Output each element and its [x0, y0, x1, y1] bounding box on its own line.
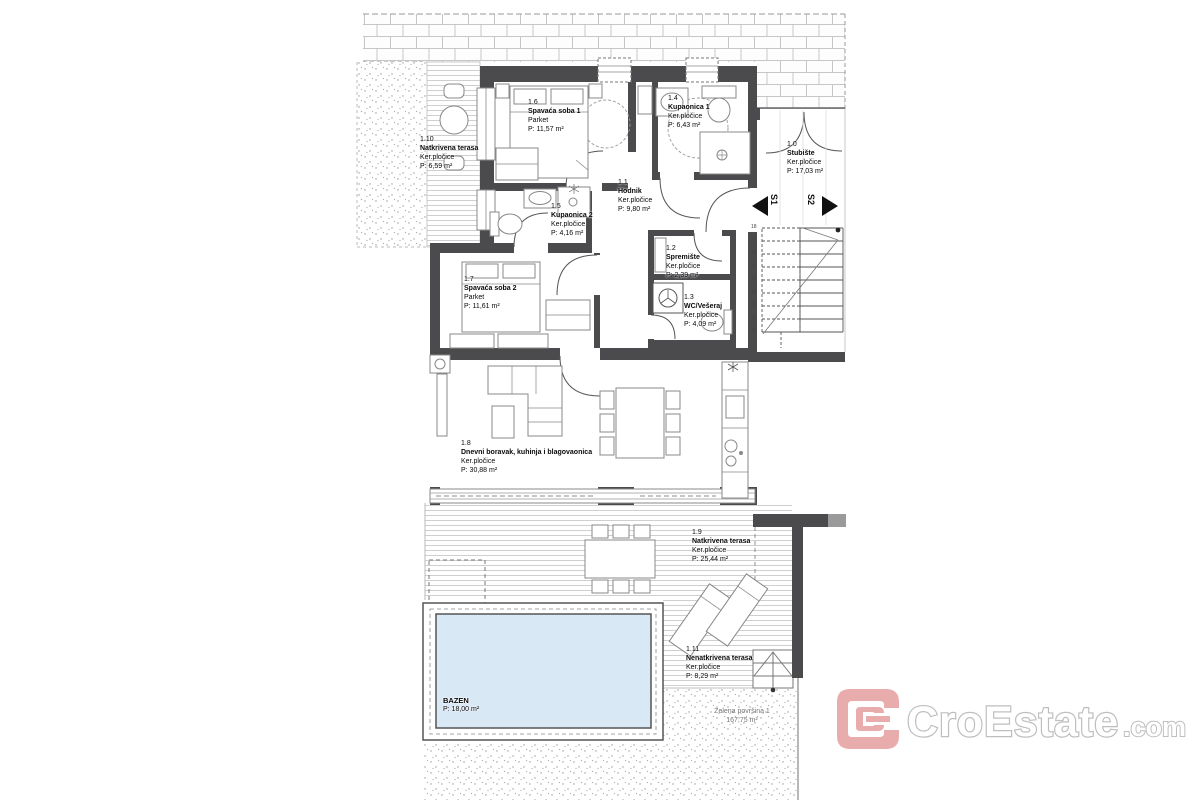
croestate-watermark: CroEstate .com: [833, 686, 1198, 761]
terrace-19-dining: [585, 525, 655, 593]
logo-tld-text: .com: [1123, 712, 1186, 742]
room-label-1-10: 1.10Natkrivena terasa Ker.pločiceP: 6,59…: [420, 135, 478, 171]
room-label-1-5: 1.5Kupaonica 2 Ker.pločiceP: 4,16 m²: [551, 202, 593, 238]
stair-step-number: 10: [751, 329, 757, 334]
garden-steps: [753, 650, 793, 692]
stair-step-number: 12: [751, 303, 757, 308]
stair-step-number: 13: [751, 290, 757, 295]
room-label-1-6: 1.6Spavaća soba 1 ParketP: 11,57 m²: [528, 98, 581, 134]
stair-step-number: 16: [751, 251, 757, 256]
section-marker-s1: S1: [769, 194, 779, 205]
living-room-furniture: [430, 355, 562, 438]
stair-step-number: 18: [751, 225, 757, 230]
stair-step-number: 17: [751, 238, 757, 243]
room-label-1-11: 1.11Nenatkrivena terasa Ker.pločiceP: 8,…: [686, 645, 753, 681]
room-label-1-1: 1.1Hodnik Ker.pločiceP: 9,80 m²: [618, 178, 652, 214]
sliding-glass-doors: [430, 489, 755, 503]
floor-plan-page: 1.0Stubište Ker.pločiceP: 17,03 m² 1.1Ho…: [0, 0, 1200, 800]
kitchen-counter: [722, 362, 748, 498]
stair-step-number: 14: [751, 277, 757, 282]
room-label-1-4: 1.4Kupaonica 1 Ker.pločiceP: 6,43 m²: [668, 94, 710, 130]
room-label-1-3: 1.3WC/Vešeraj Ker.pločiceP: 4,09 m²: [684, 293, 722, 329]
room-label-1-0: 1.0Stubište Ker.pločiceP: 17,03 m²: [787, 140, 823, 176]
section-marker-s2: S2: [806, 194, 816, 205]
dining-table: [600, 388, 680, 458]
pool-label: BAZENP: 18,00 m²: [443, 696, 479, 714]
room-label-1-7: 1.7Spavaća soba 2 ParketP: 11,61 m²: [464, 275, 517, 311]
stair-step-number: 11: [751, 316, 756, 321]
green-area-label: Zelena površina 1167,75 m²: [696, 707, 788, 725]
floor-plan-drawing: [0, 0, 1200, 800]
section-marker-arrows: [752, 196, 838, 216]
croestate-logo-icon: [837, 689, 899, 749]
stair-step-number: 15: [751, 264, 757, 269]
room-label-1-2: 1.2Spremište Ker.pločiceP: 2,39 m²: [666, 244, 700, 280]
room-label-1-9: 1.9Natkrivena terasa Ker.pločiceP: 25,44…: [692, 528, 750, 564]
logo-brand-text: CroEstate: [907, 698, 1119, 746]
hall-cabinet: [638, 86, 652, 114]
pool: [423, 603, 663, 740]
room-label-1-8: 1.8Dnevni boravak, kuhinja i blagovaonic…: [461, 439, 592, 475]
